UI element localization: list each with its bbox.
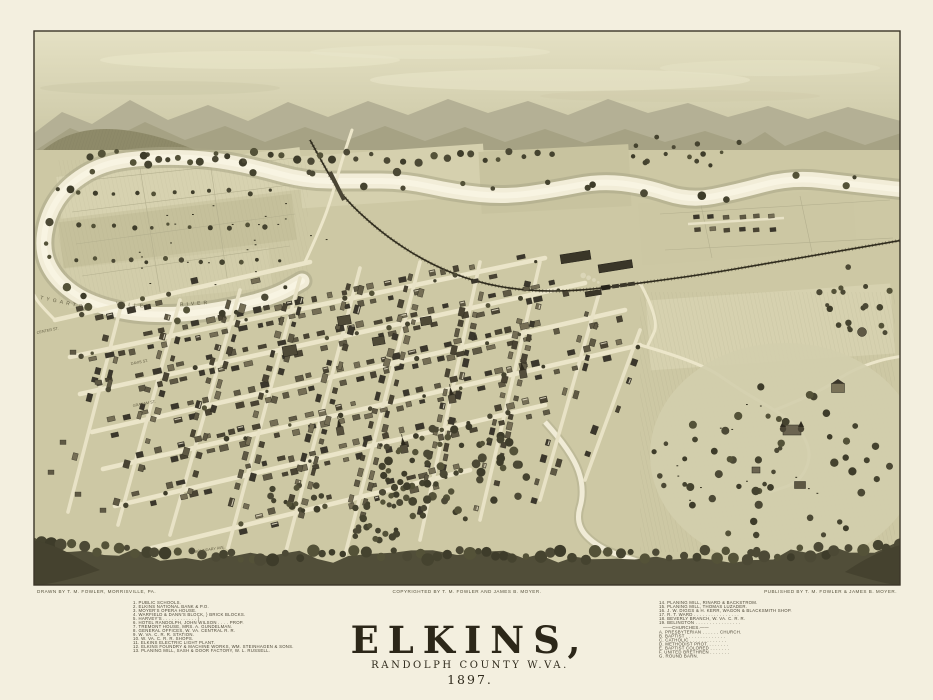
credit-copyright: COPYRIGHTED BY T. M. FOWLER AND JAMES B.… [393,589,542,594]
credit-drawn: DRAWN BY T. M. FOWLER, MORRISVILLE, PA. [37,589,156,594]
credit-published: PUBLISHED BY T. M. FOWLER & JAMES B. MOY… [764,589,897,594]
map-artwork: TYGARTS VALLEY RIVER CENTER ST. DAVIS ST… [28,31,920,586]
map-year: 1897. [447,672,493,687]
legend-item: G. ROUND BARN. [659,654,698,659]
lithograph-map-page: TYGARTS VALLEY RIVER CENTER ST. DAVIS ST… [0,0,933,700]
map-illustration: TYGARTS VALLEY RIVER CENTER ST. DAVIS ST… [0,0,933,700]
map-subtitle: RANDOLPH COUNTY W.VA. [371,660,569,671]
map-title: ELKINS, [351,618,590,662]
legend-item: 13. PLANING MILL, SASH & DOOR FACTORY, W… [133,648,270,653]
